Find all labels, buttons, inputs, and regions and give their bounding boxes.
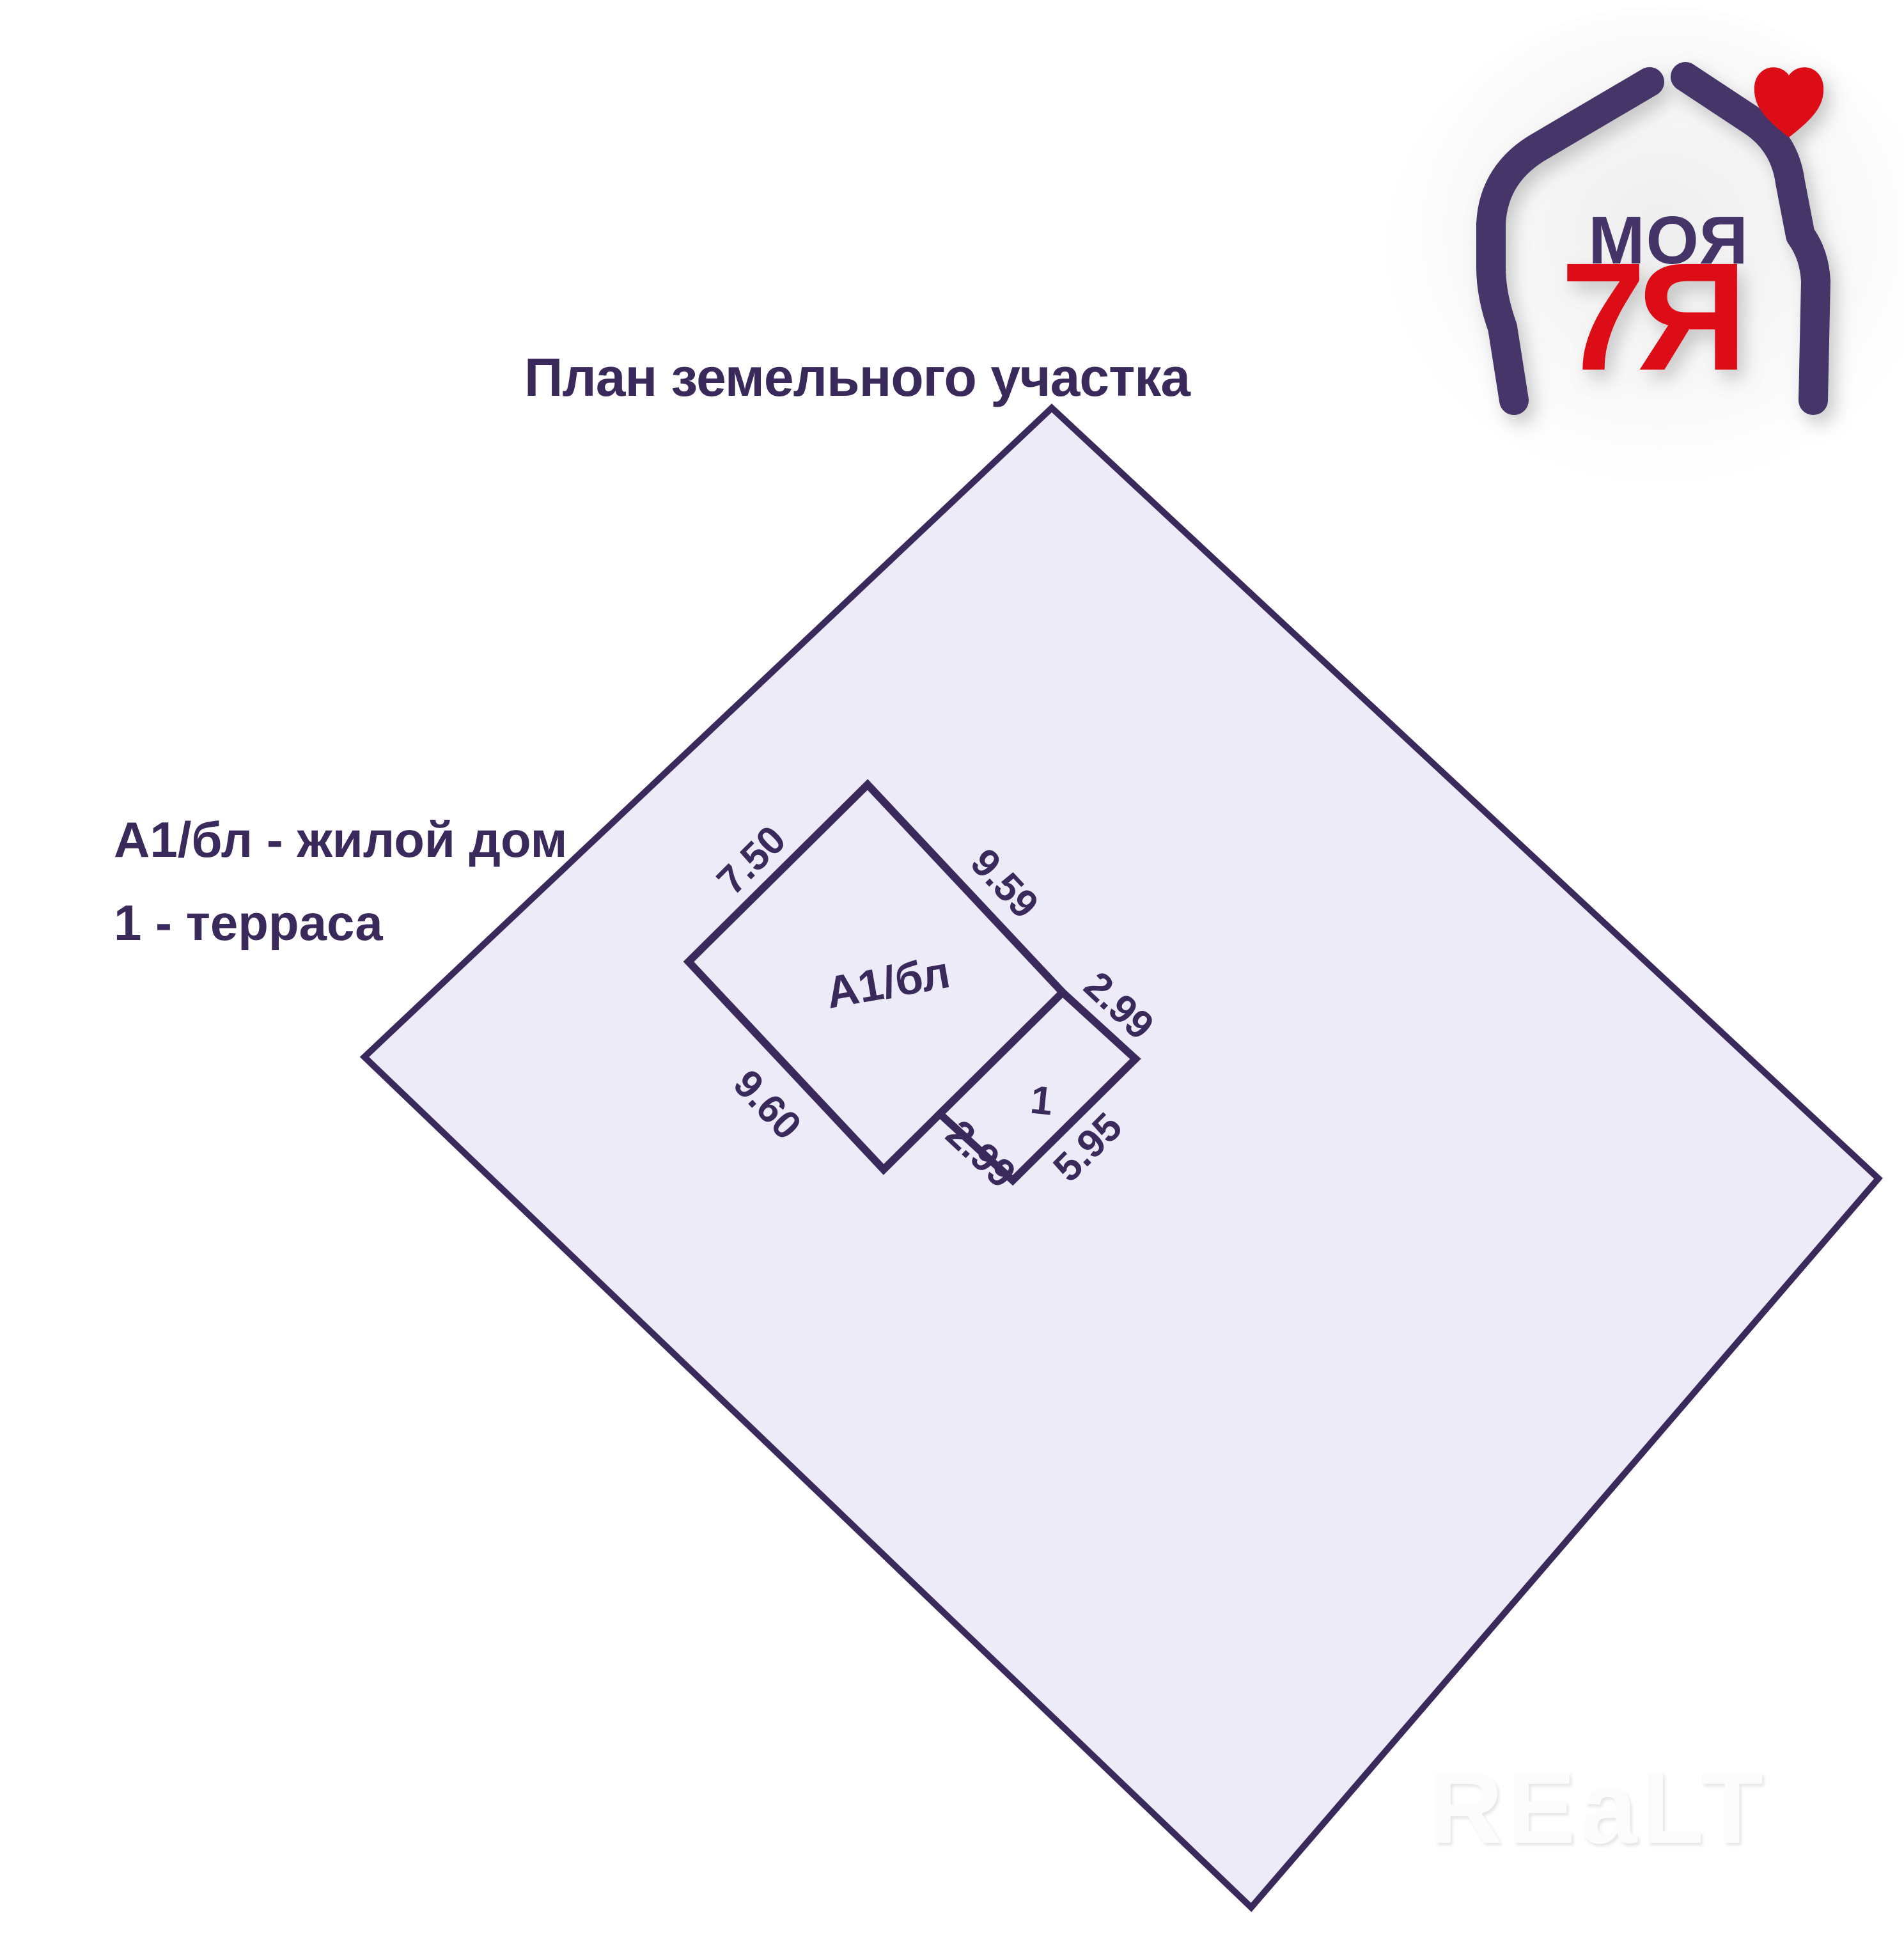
agency-logo: 7Я МОЯ <box>1386 6 1904 505</box>
page-title: План земельного участка <box>513 347 1201 409</box>
land-parcel-shape <box>364 408 1878 1907</box>
logo-word-top: МОЯ <box>1588 203 1749 278</box>
terrace-label: 1 <box>1028 1077 1055 1123</box>
watermark: REaLT <box>1429 1749 1768 1866</box>
legend-line-house: А1/бл - жилой дом <box>114 798 567 881</box>
legend: А1/бл - жилой дом 1 - терраса <box>114 798 567 964</box>
legend-line-terrace: 1 - терраса <box>114 881 567 964</box>
land-plan-drawing: 7.50 9.59 2.99 9.60 2.99 5.95 А1/бл 1 7Я… <box>0 0 1904 1933</box>
